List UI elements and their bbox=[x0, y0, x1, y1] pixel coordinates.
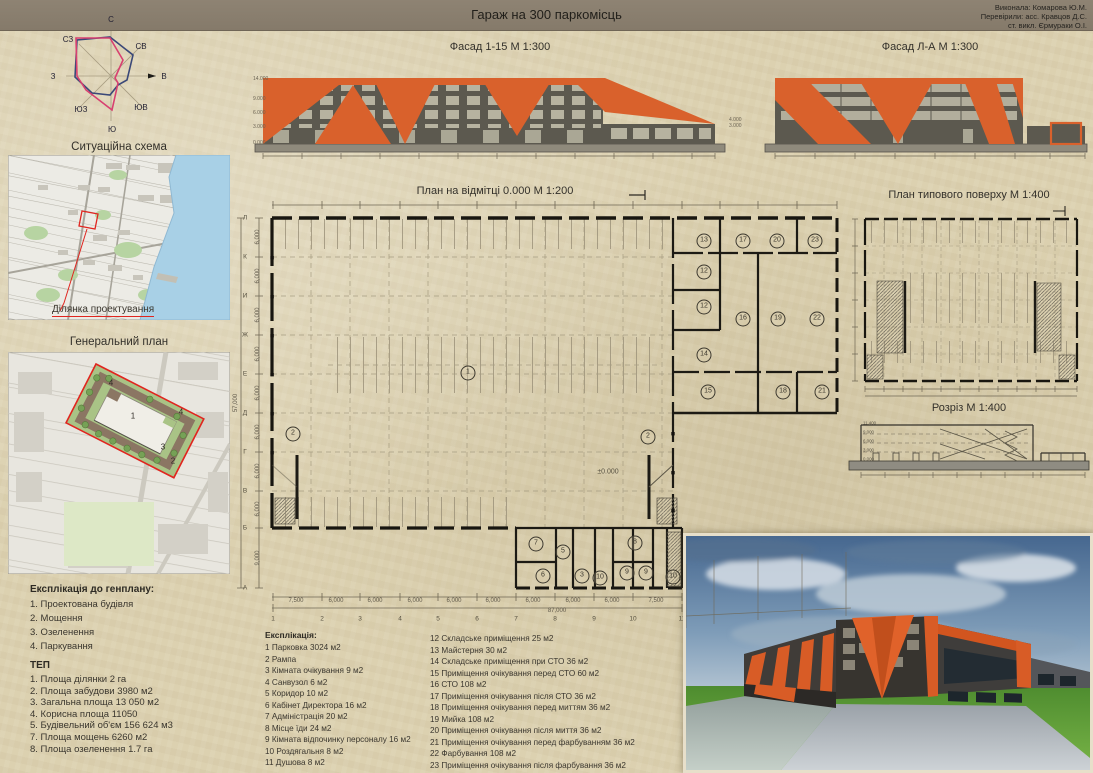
facade-la-title: Фасад Л-А М 1:300 bbox=[780, 41, 1080, 53]
room-number-badge: 9 bbox=[620, 566, 635, 581]
genplan-marker: 4 bbox=[109, 379, 113, 388]
label-northeast: СВ bbox=[135, 42, 146, 51]
level-label: 3.000 bbox=[253, 124, 266, 130]
dimension-line bbox=[861, 472, 1085, 478]
grid-column-number: 5 bbox=[436, 616, 440, 623]
tep-item: 7. Площа мощень 6260 м2 bbox=[30, 732, 240, 744]
explication-item: 11 Душова 8 м2 bbox=[265, 757, 425, 769]
level-label: 6.000 bbox=[253, 110, 266, 116]
explication-list-1: 1 Парковка 3024 м22 Рампа3 Кімната очіку… bbox=[265, 642, 425, 769]
dimension-label: 6,000 bbox=[485, 598, 500, 604]
grid-column-number: 2 bbox=[320, 616, 324, 623]
explication-item: 18 Приміщення очікування перед миттям 36… bbox=[430, 702, 660, 714]
tep-list: 1. Площа ділянки 2 га2. Площа забудови 3… bbox=[30, 674, 240, 755]
presentation-board: Гараж на 300 паркомісць Виконала: Комаро… bbox=[0, 0, 1093, 773]
explication-item: 15 Приміщення очікування перед СТО 60 м2 bbox=[430, 668, 660, 680]
grid-row-letter: Е bbox=[243, 371, 247, 378]
tep-heading: ТЕП bbox=[30, 660, 240, 671]
explication-item: 10 Роздягальня 8 м2 bbox=[265, 746, 425, 758]
room-number-badge: 12 bbox=[697, 265, 712, 280]
level-label: 14.000 bbox=[253, 76, 269, 82]
room-number-badge: 2 bbox=[641, 430, 656, 445]
legend-item: 3. Озеленення bbox=[30, 626, 230, 640]
room-number-badge: 23 bbox=[808, 234, 823, 249]
facade-1-15-drawing: 14.000 9.000 6.000 3.000 0.000 4.000 3.0… bbox=[253, 66, 749, 162]
wind-rose-diagram: С СВ В ЮВ Ю ЮЗ З СЗ bbox=[28, 6, 178, 141]
credits-block: Виконала: Комарова Ю.М. Перевірили: асс.… bbox=[981, 3, 1087, 30]
dimension-strip bbox=[775, 153, 1085, 159]
genplan-legend-list: 1. Проектована будівля2. Мощення3. Озеле… bbox=[30, 598, 230, 654]
explication-item: 1 Парковка 3024 м2 bbox=[265, 642, 425, 654]
dimension-label: 6,000 bbox=[525, 598, 540, 604]
grid-column-number: 3 bbox=[358, 616, 362, 623]
level-label: 3.000 bbox=[863, 447, 875, 452]
legend-item: 4. Паркування bbox=[30, 640, 230, 654]
explication-item: 22 Фарбування 108 м2 bbox=[430, 748, 660, 760]
room-number-badge: 6 bbox=[536, 569, 551, 584]
explication-col1: Експлікація: 1 Парковка 3024 м22 Рампа3 … bbox=[265, 630, 425, 769]
situation-map bbox=[8, 155, 230, 320]
room-number-badge: 20 bbox=[770, 234, 785, 249]
dimension-label: 6,000 bbox=[255, 501, 261, 516]
room-number-badge: 14 bbox=[697, 348, 712, 363]
room-number-badge: 16 bbox=[736, 312, 751, 327]
explication-list-2: 12 Складське приміщення 25 м213 Майстерн… bbox=[430, 633, 660, 771]
room-number-badge: 1 bbox=[461, 366, 476, 381]
genplan-marker: 1 bbox=[131, 412, 135, 421]
dimension-label: 6,000 bbox=[255, 268, 261, 283]
genplan-title: Генеральний план bbox=[8, 336, 230, 348]
room-number-badge: 10 bbox=[666, 570, 681, 585]
grid-column-number: 6 bbox=[475, 616, 479, 623]
tep-item: 5. Будівельний об'єм 156 624 м3 bbox=[30, 720, 240, 732]
explication-item: 7 Адміністрація 20 м2 bbox=[265, 711, 425, 723]
grid-row-letter: Л bbox=[243, 215, 247, 222]
orange-facade-shapes bbox=[775, 78, 1023, 144]
render-frame bbox=[683, 533, 1093, 773]
east-arrow-icon bbox=[148, 74, 156, 79]
room-number-badge: 17 bbox=[736, 234, 751, 249]
grid-row-letter: В bbox=[243, 488, 247, 495]
side-total-dimension: 57,000 bbox=[233, 394, 239, 412]
explication-item: 20 Приміщення очікування після миття 36 … bbox=[430, 725, 660, 737]
room-number-badge: 19 bbox=[771, 312, 786, 327]
explication-item: 16 СТО 108 м2 bbox=[430, 679, 660, 691]
dimension-label: 6,000 bbox=[565, 598, 580, 604]
dimension-label: 6,000 bbox=[255, 385, 261, 400]
label-southwest: ЮЗ bbox=[75, 105, 88, 114]
dimension-label: 6,000 bbox=[255, 307, 261, 322]
genplan-marker: 2 bbox=[171, 457, 175, 466]
room-number-badge: 7 bbox=[529, 537, 544, 552]
site-label: Ділянка проектування bbox=[52, 304, 154, 317]
tep-item: 1. Площа ділянки 2 га bbox=[30, 674, 240, 686]
room-number-badge: 15 bbox=[701, 385, 716, 400]
explication-item: 3 Кімната очікування 9 м2 bbox=[265, 665, 425, 677]
dimension-label: 6,000 bbox=[255, 424, 261, 439]
explication-heading: Експлікація: bbox=[265, 630, 425, 640]
grid-column-number: 1 bbox=[271, 616, 275, 623]
dimension-label: 6,000 bbox=[446, 598, 461, 604]
explication-item: 6 Кабінет Директора 16 м2 bbox=[265, 700, 425, 712]
explication-item: 5 Коридор 10 м2 bbox=[265, 688, 425, 700]
dimension-label: 6,000 bbox=[367, 598, 382, 604]
level-label: 0.000 bbox=[253, 140, 266, 146]
dimension-label: 6,000 bbox=[255, 229, 261, 244]
room-number-badge: 21 bbox=[815, 385, 830, 400]
dimension-label: 6,000 bbox=[407, 598, 422, 604]
section-posts bbox=[873, 453, 1073, 461]
genplan-markers: 41432 bbox=[8, 352, 230, 574]
dimension-label: 7,500 bbox=[648, 598, 663, 604]
label-west: З bbox=[51, 72, 56, 81]
room-number-badge: 13 bbox=[697, 234, 712, 249]
room-number-badge: 10 bbox=[593, 571, 608, 586]
grid-column-number: 10 bbox=[629, 616, 636, 623]
label-east: В bbox=[161, 72, 166, 81]
grid-row-letter: Г bbox=[243, 449, 247, 456]
explication-item: 17 Приміщення очікування після СТО 36 м2 bbox=[430, 691, 660, 703]
credit-line: Перевірили: асс. Кравцов Д.С. bbox=[981, 12, 1087, 21]
level-label: 11.400 bbox=[863, 420, 877, 425]
label-northwest: СЗ bbox=[63, 35, 74, 44]
legend-item: 1. Проектована будівля bbox=[30, 598, 230, 612]
grid-column-number: 9 bbox=[592, 616, 596, 623]
tep-item: 3. Загальна площа 13 050 м2 bbox=[30, 697, 240, 709]
annex-orange-frame bbox=[1051, 123, 1081, 144]
bottom-total-dimension: 87,000 bbox=[548, 608, 566, 614]
legend-item: 2. Мощення bbox=[30, 612, 230, 626]
situation-title: Ситуаційна схема bbox=[8, 141, 230, 153]
grid-row-letter: Б bbox=[243, 525, 247, 532]
grid-column-number: 7 bbox=[514, 616, 518, 623]
explication-item: 12 Складське приміщення 25 м2 bbox=[430, 633, 660, 645]
room-number-badge: 8 bbox=[628, 536, 643, 551]
explication-item: 19 Мийка 108 м2 bbox=[430, 714, 660, 726]
tep-item: 8. Площа озеленення 1.7 га bbox=[30, 744, 240, 756]
room-number-badge: 18 bbox=[776, 385, 791, 400]
wind-rose-series-pink bbox=[76, 38, 123, 110]
grid-column-number: 4 bbox=[398, 616, 402, 623]
explication-item: 8 Місце їди 24 м2 bbox=[265, 723, 425, 735]
ground-strip bbox=[255, 144, 725, 152]
dimension-label: 6,000 bbox=[255, 346, 261, 361]
genplan-legend-heading: Експлікація до генплану: bbox=[30, 584, 230, 595]
explication-item: 2 Рампа bbox=[265, 654, 425, 666]
explication-item: 13 Майстерня 30 м2 bbox=[430, 645, 660, 657]
room-number-badge: 12 bbox=[697, 300, 712, 315]
credit-line: ст. викл. Єрмураки О.І. bbox=[981, 21, 1087, 30]
room-number-badge: 5 bbox=[556, 545, 571, 560]
dimension-label: 7,500 bbox=[288, 598, 303, 604]
genplan-marker: 3 bbox=[161, 443, 165, 452]
section-drawing: 0.000 3.000 6.000 9.000 11.400 bbox=[845, 415, 1093, 487]
explication-item: 14 Складське приміщення при СТО 36 м2 bbox=[430, 656, 660, 668]
grid-row-letter: А bbox=[243, 585, 247, 592]
grid-column-number: 8 bbox=[553, 616, 557, 623]
section-title: Розріз М 1:400 bbox=[845, 402, 1093, 414]
explication-item: 9 Кімната відпочинку персоналу 16 м2 bbox=[265, 734, 425, 746]
grid-row-letter: Д bbox=[243, 410, 247, 417]
level-label: 3.000 bbox=[729, 123, 742, 129]
section-level-labels: 0.000 3.000 6.000 9.000 11.400 bbox=[863, 420, 877, 461]
label-north: С bbox=[108, 15, 114, 24]
label-southeast: ЮВ bbox=[134, 103, 147, 112]
credit-line: Виконала: Комарова Ю.М. bbox=[981, 3, 1087, 12]
room-number-badge: 3 bbox=[575, 569, 590, 584]
ground-bar bbox=[849, 461, 1089, 470]
level-label: 9.000 bbox=[253, 96, 266, 102]
explication-col2: 12 Складське приміщення 25 м213 Майстерн… bbox=[430, 633, 660, 771]
level-label: 0.000 bbox=[863, 456, 875, 461]
ground-strip bbox=[765, 144, 1087, 152]
grid-row-letter: К bbox=[243, 254, 247, 261]
dimension-label: 9,000 bbox=[255, 550, 261, 565]
room-number-badge: 9 bbox=[639, 566, 654, 581]
genplan-marker: 4 bbox=[179, 408, 183, 417]
level-mark: ±0.000 bbox=[597, 469, 618, 476]
dimension-label: 6,000 bbox=[328, 598, 343, 604]
tep-item: 2. Площа забудови 3980 м2 bbox=[30, 686, 240, 698]
level-label: 9.000 bbox=[863, 429, 875, 434]
grid-row-letter: И bbox=[243, 293, 248, 300]
building-render bbox=[686, 536, 1090, 770]
typical-plan-drawing bbox=[845, 203, 1093, 403]
explication-item: 21 Приміщення очікування перед фарбуванн… bbox=[430, 737, 660, 749]
level-label: 6.000 bbox=[863, 438, 875, 443]
label-south: Ю bbox=[108, 125, 116, 134]
explication-item: 23 Приміщення очікування після фарбуванн… bbox=[430, 760, 660, 772]
room-number-badge: 22 bbox=[810, 312, 825, 327]
dimension-strip bbox=[263, 153, 715, 159]
facade-1-15-title: Фасад 1-15 М 1:300 bbox=[350, 41, 650, 53]
tep-item: 4. Корисна площа 11050 bbox=[30, 709, 240, 721]
dimension-label: 6,000 bbox=[255, 463, 261, 478]
typical-plan-title: План типового поверху М 1:400 bbox=[845, 189, 1093, 201]
room-number-badge: 2 bbox=[286, 427, 301, 442]
tep-block: ТЕП 1. Площа ділянки 2 га2. Площа забудо… bbox=[30, 660, 240, 755]
facade-la-drawing bbox=[763, 66, 1093, 162]
grid-row-letter: Ж bbox=[242, 332, 248, 339]
explication-item: 4 Санвузол 6 м2 bbox=[265, 677, 425, 689]
genplan-legend: Експлікація до генплану: 1. Проектована … bbox=[30, 584, 230, 654]
dimension-label: 6,000 bbox=[604, 598, 619, 604]
